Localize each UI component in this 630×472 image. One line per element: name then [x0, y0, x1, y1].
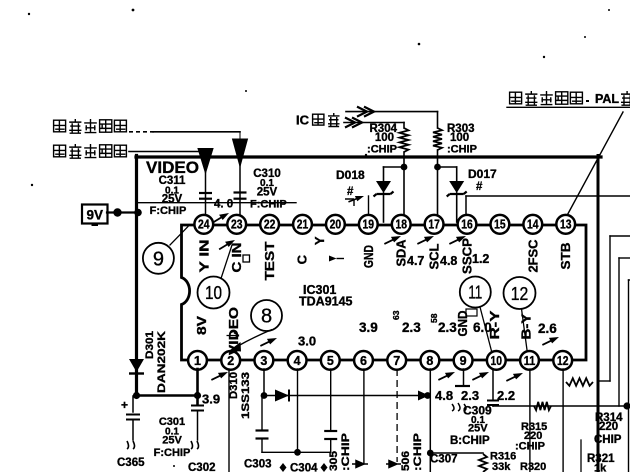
svg-text:5: 5	[327, 354, 334, 368]
svg-text:25V: 25V	[257, 187, 278, 199]
svg-text:4: 4	[294, 354, 301, 368]
svg-text:2FSC: 2FSC	[525, 239, 540, 273]
svg-text:C303: C303	[244, 459, 272, 471]
svg-text:D301: D301	[144, 331, 156, 359]
svg-text:C304: C304	[290, 463, 318, 472]
svg-text:+: +	[121, 398, 128, 412]
svg-text:TDA9145: TDA9145	[299, 295, 353, 309]
svg-text:8V: 8V	[194, 316, 209, 335]
svg-text:25V: 25V	[162, 194, 183, 206]
svg-text:IC: IC	[296, 113, 310, 128]
svg-text:100: 100	[375, 132, 394, 144]
svg-text:Y IN: Y IN	[196, 240, 211, 273]
svg-text:Y: Y	[312, 236, 327, 245]
svg-text:17: 17	[428, 218, 440, 232]
svg-text:16: 16	[461, 218, 473, 232]
svg-text:C: C	[295, 254, 310, 264]
svg-text:1: 1	[194, 354, 201, 368]
svg-text:22: 22	[264, 218, 276, 232]
svg-text:33k: 33k	[492, 461, 511, 472]
svg-text:STB: STB	[558, 243, 573, 270]
svg-text:3.0: 3.0	[298, 334, 316, 349]
svg-text:#: #	[476, 181, 483, 193]
svg-text:9: 9	[153, 248, 164, 270]
svg-text:305: 305	[328, 451, 340, 471]
svg-text:4.8: 4.8	[440, 254, 457, 268]
svg-text:PAL: PAL	[595, 92, 619, 106]
svg-text:C307: C307	[430, 454, 458, 466]
svg-text:DAN202K: DAN202K	[156, 331, 168, 393]
svg-text:9V: 9V	[86, 208, 103, 223]
svg-text:18: 18	[395, 218, 407, 232]
svg-text:D018: D018	[336, 168, 365, 182]
svg-text:20: 20	[330, 218, 342, 232]
svg-text:11: 11	[468, 283, 482, 303]
svg-text:9: 9	[460, 354, 467, 368]
svg-text:2.2: 2.2	[497, 388, 515, 403]
svg-text:F:CHIP: F:CHIP	[150, 205, 187, 217]
svg-text:21: 21	[297, 218, 309, 232]
svg-text:19: 19	[363, 218, 375, 232]
svg-text:B:CHIP: B:CHIP	[450, 435, 490, 447]
svg-text::CHIP: :CHIP	[447, 144, 477, 156]
svg-text:63: 63	[391, 310, 401, 320]
svg-text:8: 8	[261, 305, 272, 327]
svg-text:13: 13	[560, 218, 572, 232]
svg-text::CHIP: :CHIP	[515, 441, 545, 453]
svg-text:7: 7	[393, 354, 400, 368]
svg-text:B-Y: B-Y	[519, 313, 534, 339]
svg-text::CHIP: :CHIP	[340, 433, 352, 471]
svg-text:23: 23	[231, 218, 243, 232]
svg-text:14: 14	[527, 218, 539, 232]
svg-text:F:CHIP: F:CHIP	[250, 199, 287, 211]
svg-text:#: #	[347, 186, 354, 198]
svg-text::CHIP: :CHIP	[367, 144, 397, 156]
svg-text::CHIP: :CHIP	[412, 433, 424, 471]
svg-text:GND: GND	[361, 245, 376, 268]
svg-text:506: 506	[400, 451, 412, 471]
svg-text:D310: D310	[228, 372, 240, 399]
svg-text:3.9: 3.9	[359, 320, 378, 335]
svg-text:15: 15	[494, 218, 506, 232]
svg-text:220: 220	[599, 421, 618, 433]
svg-text:12: 12	[557, 354, 569, 368]
svg-text:F:CHIP: F:CHIP	[154, 447, 191, 459]
svg-text:3: 3	[260, 354, 267, 368]
svg-text:8: 8	[426, 354, 433, 368]
svg-text:R320: R320	[520, 461, 546, 472]
svg-text:4.7: 4.7	[407, 254, 424, 268]
svg-text:4.8: 4.8	[435, 388, 453, 403]
svg-text:D017: D017	[468, 167, 497, 181]
svg-text:11: 11	[524, 354, 536, 368]
svg-text:6: 6	[360, 354, 367, 368]
svg-text:2.6: 2.6	[538, 321, 557, 336]
svg-text:12: 12	[511, 284, 529, 304]
svg-text:25V: 25V	[468, 423, 488, 435]
svg-text:1k: 1k	[594, 463, 607, 472]
svg-text:6.0: 6.0	[473, 320, 492, 335]
svg-text:10: 10	[205, 283, 222, 303]
svg-text:3.9: 3.9	[202, 392, 220, 407]
svg-text:2.3: 2.3	[402, 320, 421, 335]
svg-text:10: 10	[491, 354, 503, 368]
svg-text:GND: GND	[455, 311, 470, 337]
svg-text:24: 24	[198, 218, 210, 232]
svg-text:CHIP: CHIP	[594, 434, 622, 446]
svg-text:C365: C365	[117, 457, 145, 469]
svg-text:1.2: 1.2	[472, 252, 489, 266]
svg-text:100: 100	[450, 132, 469, 144]
svg-text:4. 0: 4. 0	[214, 199, 233, 211]
svg-text:C302: C302	[188, 462, 216, 472]
svg-text:TEST: TEST	[262, 241, 277, 280]
svg-text:2.3: 2.3	[438, 320, 457, 335]
svg-text:25V: 25V	[162, 435, 182, 447]
svg-text:2.3: 2.3	[461, 388, 479, 403]
svg-text:1SS133: 1SS133	[240, 372, 252, 419]
svg-text:58: 58	[429, 313, 439, 323]
